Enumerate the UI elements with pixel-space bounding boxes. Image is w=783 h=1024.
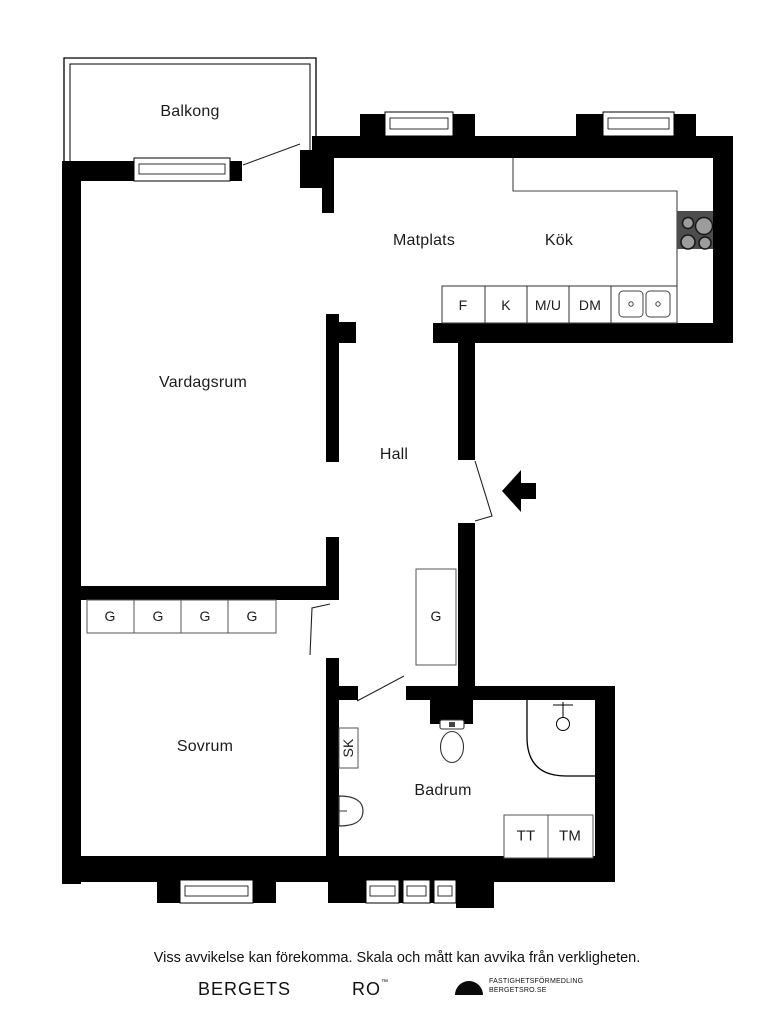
shower-icon <box>527 700 595 776</box>
wall-bedroom-right <box>326 658 339 882</box>
wall-top-kitchen <box>312 136 733 158</box>
cleaning-closet-label: SK <box>340 738 356 757</box>
room-label-hall: Hall <box>380 446 408 464</box>
wall-hall-left-stub <box>339 322 356 343</box>
wall-stub-living-dining <box>322 188 334 213</box>
kitchen-sink-icon <box>619 291 670 317</box>
wall-pier <box>360 114 385 138</box>
dining-window-icon <box>385 112 453 136</box>
bedroom-window-icon <box>180 880 253 903</box>
wall-hall-right-upper <box>458 343 475 460</box>
hall-wardrobe-label: G <box>430 608 441 624</box>
bedroom-door-swing <box>310 604 330 655</box>
trademark-symbol: ™ <box>381 979 388 986</box>
wall-left <box>62 161 81 884</box>
wall-balcony-left <box>62 161 134 181</box>
room-label-bathroom: Badrum <box>414 782 471 800</box>
wall-balcony-jamb <box>230 161 242 181</box>
wall-pier <box>674 114 696 138</box>
wall-bath-right <box>595 700 615 882</box>
disclaimer-text: Viss avvikelse kan förekomma. Skala och … <box>154 950 641 966</box>
room-label-bedroom: Sovrum <box>177 738 233 756</box>
entry-arrow-icon <box>502 470 536 512</box>
wardrobe-label: G <box>199 608 210 624</box>
floor-plan-drawing <box>0 0 783 1024</box>
window-mullion <box>430 880 434 903</box>
wall-bath-top <box>406 686 615 700</box>
windows <box>134 112 674 903</box>
bathroom-door-swing <box>357 676 404 701</box>
room-label-living: Vardagsrum <box>159 374 247 392</box>
kitchen-window-icon <box>603 112 674 136</box>
kitchen-unit-label-dishwasher: DM <box>579 297 601 313</box>
stove-icon <box>677 211 713 249</box>
wall-bottom-protrusion <box>456 856 494 908</box>
brand-wordmark-left: BERGETS <box>198 979 291 1000</box>
window-mullion <box>399 880 403 903</box>
brand-wordmark-right: RO™ <box>352 979 388 1000</box>
kitchen-unit-label-fridge: F <box>459 297 468 313</box>
brand-tagline-line2: BERGETSRO.SE <box>489 987 583 996</box>
wardrobe-label: G <box>246 608 257 624</box>
wall-pier <box>576 114 603 138</box>
wall-window-jamb <box>253 856 276 903</box>
bathroom-window-icon <box>366 880 456 903</box>
wall-hall-right-lower <box>458 523 475 690</box>
toilet-icon <box>440 720 464 763</box>
wall-kitchen-bottom <box>433 323 733 343</box>
dryer-label: TT <box>517 828 536 845</box>
wardrobe-label: G <box>152 608 163 624</box>
room-label-kitchen: Kök <box>545 232 573 250</box>
balcony-door-swing <box>243 144 300 165</box>
kitchen-unit-label-freezer: K <box>501 297 511 313</box>
brand-tagline-line1: FASTIGHETSFÖRMEDLING <box>489 978 583 987</box>
counter-edge <box>513 158 677 286</box>
wall-pier <box>453 114 475 138</box>
entry-door-swing <box>475 461 492 521</box>
room-label-balcony: Balkong <box>160 103 219 121</box>
wall-hall-left-upper <box>326 314 339 462</box>
kitchen-unit-label-micro-oven: M/U <box>535 297 561 313</box>
washer-label: TM <box>559 828 581 845</box>
brand-wordmark-right-text: RO <box>352 979 381 999</box>
wall-bedroom-top <box>62 586 339 600</box>
brand-tagline: FASTIGHETSFÖRMEDLING BERGETSRO.SE <box>489 978 583 995</box>
wall-window-jamb <box>328 856 366 903</box>
wall-bath-top-stub <box>339 686 358 700</box>
wardrobe-label: G <box>104 608 115 624</box>
wall-right-kitchen <box>713 136 733 343</box>
room-label-dining: Matplats <box>393 232 455 250</box>
bathroom-sink-icon <box>339 796 363 826</box>
floor-plan-page: Balkong Matplats Kök Vardagsrum Hall Sov… <box>0 0 783 1024</box>
wall-window-jamb <box>157 856 180 903</box>
balcony-window-icon <box>134 158 230 181</box>
